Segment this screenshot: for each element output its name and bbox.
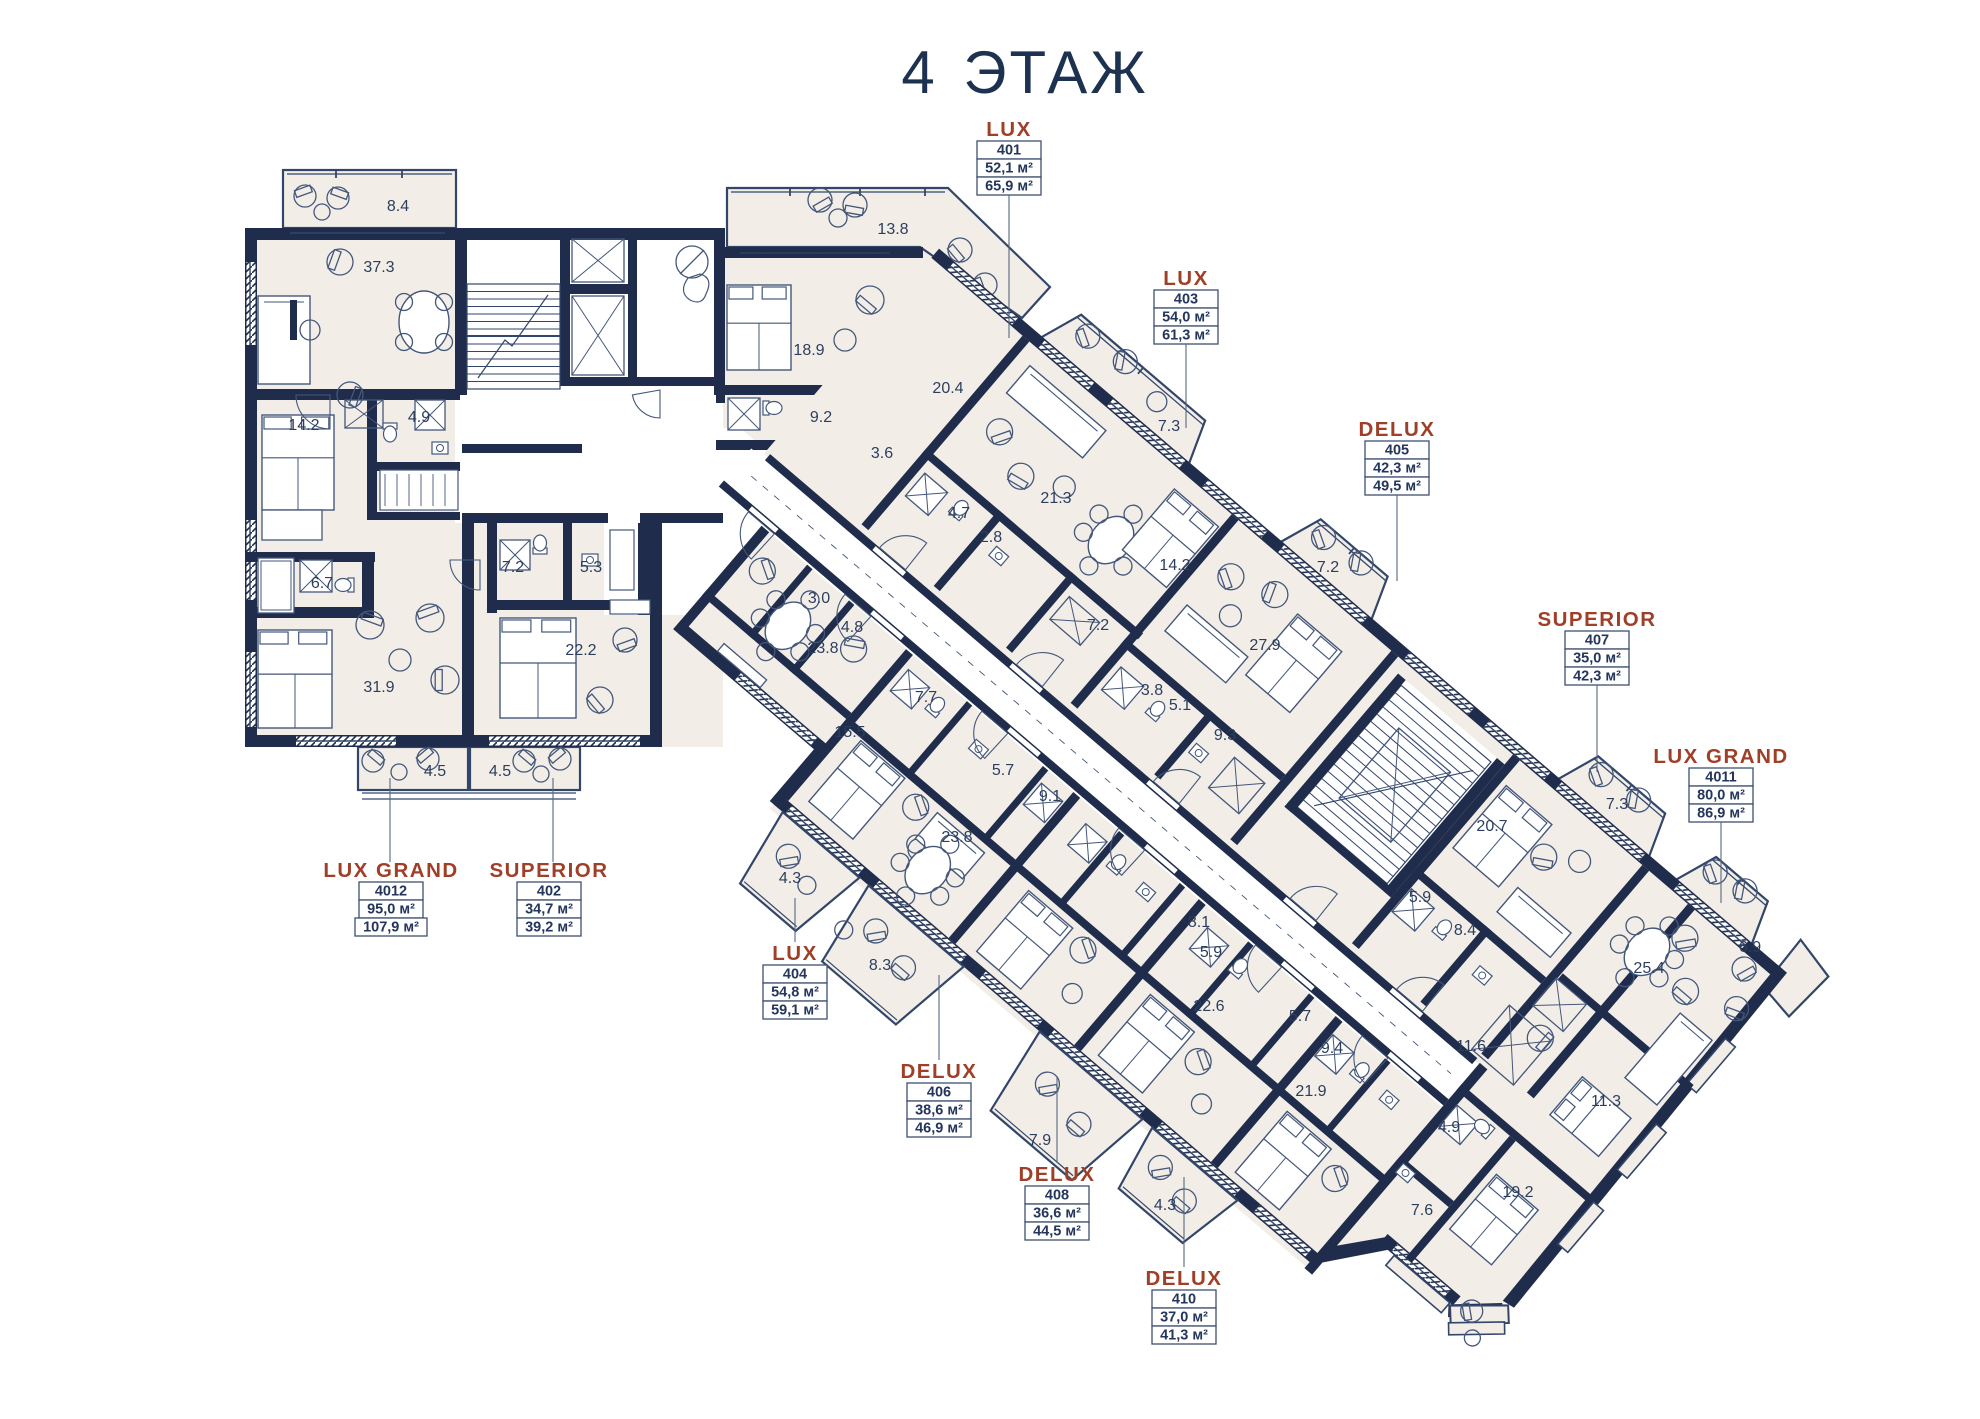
svg-text:402: 402 [537, 884, 561, 900]
svg-text:14.2: 14.2 [1159, 557, 1190, 574]
svg-text:4.5: 4.5 [489, 763, 511, 780]
svg-text:4.7: 4.7 [948, 505, 970, 522]
svg-text:27.9: 27.9 [1249, 637, 1280, 654]
svg-text:LUX: LUX [986, 118, 1032, 141]
svg-text:25.4: 25.4 [1633, 960, 1664, 977]
svg-text:15.5: 15.5 [834, 724, 865, 741]
svg-text:35,0 м²: 35,0 м² [1573, 651, 1621, 667]
svg-text:LUX GRAND: LUX GRAND [323, 859, 458, 882]
svg-text:39,2 м²: 39,2 м² [525, 920, 573, 936]
svg-text:6.7: 6.7 [311, 575, 333, 592]
svg-text:22.6: 22.6 [1193, 998, 1224, 1015]
svg-text:61,3 м²: 61,3 м² [1162, 328, 1210, 344]
svg-text:37.3: 37.3 [363, 259, 394, 276]
svg-text:49,5 м²: 49,5 м² [1373, 479, 1421, 495]
svg-text:20.4: 20.4 [932, 380, 963, 397]
svg-text:4.9: 4.9 [408, 409, 430, 426]
svg-text:7.3: 7.3 [1158, 418, 1180, 435]
svg-text:DELUX: DELUX [1359, 418, 1436, 441]
svg-text:7.2: 7.2 [502, 559, 524, 576]
svg-text:95,0 м²: 95,0 м² [367, 902, 415, 918]
svg-text:9.1: 9.1 [1039, 788, 1061, 805]
svg-text:86,9 м²: 86,9 м² [1697, 806, 1745, 822]
svg-text:5.3: 5.3 [580, 559, 602, 576]
svg-text:8.4: 8.4 [1454, 922, 1476, 939]
svg-text:37,0 м²: 37,0 м² [1160, 1310, 1208, 1326]
svg-text:8.1: 8.1 [1188, 914, 1210, 931]
svg-text:19.2: 19.2 [1502, 1184, 1533, 1201]
svg-text:9.3: 9.3 [1214, 727, 1236, 744]
svg-text:4.8: 4.8 [841, 619, 863, 636]
svg-text:23.8: 23.8 [941, 829, 972, 846]
svg-text:408: 408 [1045, 1188, 1069, 1204]
svg-text:4011: 4011 [1705, 770, 1736, 786]
svg-text:11.3: 11.3 [1591, 1093, 1621, 1110]
svg-text:7.2: 7.2 [1317, 559, 1339, 576]
svg-text:LUX: LUX [772, 942, 818, 965]
svg-text:36,6 м²: 36,6 м² [1033, 1206, 1081, 1222]
svg-text:4.9: 4.9 [1438, 1119, 1460, 1136]
svg-text:59,1 м²: 59,1 м² [771, 1003, 819, 1019]
svg-text:14.2: 14.2 [288, 417, 319, 434]
svg-text:3.0: 3.0 [808, 590, 830, 607]
svg-text:52,1 м²: 52,1 м² [985, 161, 1033, 177]
svg-text:23.8: 23.8 [807, 640, 838, 657]
svg-text:405: 405 [1385, 443, 1409, 459]
svg-text:5.7: 5.7 [1289, 1008, 1311, 1025]
svg-text:42,3 м²: 42,3 м² [1573, 669, 1621, 685]
svg-text:107,9 м²: 107,9 м² [363, 920, 419, 936]
svg-text:20.7: 20.7 [1476, 818, 1507, 835]
svg-text:21.9: 21.9 [1295, 1083, 1326, 1100]
svg-text:41,3 м²: 41,3 м² [1160, 1328, 1208, 1344]
svg-text:401: 401 [997, 143, 1021, 159]
svg-text:65,9 м²: 65,9 м² [985, 179, 1033, 195]
svg-text:407: 407 [1585, 633, 1609, 649]
svg-text:3.6: 3.6 [871, 445, 893, 462]
svg-text:SUPERIOR: SUPERIOR [489, 859, 608, 882]
svg-text:54,0 м²: 54,0 м² [1162, 310, 1210, 326]
svg-text:3.8: 3.8 [1141, 682, 1163, 699]
svg-text:8.3: 8.3 [869, 957, 891, 974]
svg-text:LUX: LUX [1163, 267, 1209, 290]
svg-text:7.2: 7.2 [1087, 617, 1109, 634]
svg-text:7.3: 7.3 [1606, 796, 1628, 813]
svg-text:5.1: 5.1 [1169, 697, 1191, 714]
svg-text:406: 406 [927, 1085, 951, 1101]
svg-text:31.9: 31.9 [363, 679, 394, 696]
svg-text:LUX GRAND: LUX GRAND [1653, 745, 1788, 768]
svg-text:403: 403 [1174, 292, 1198, 308]
svg-text:6.9: 6.9 [1739, 939, 1761, 956]
svg-text:7.9: 7.9 [1029, 1132, 1051, 1149]
svg-text:21.3: 21.3 [1040, 490, 1071, 507]
svg-text:13.8: 13.8 [877, 221, 908, 238]
svg-text:34,7 м²: 34,7 м² [525, 902, 573, 918]
svg-text:8.4: 8.4 [387, 198, 409, 215]
svg-text:2.8: 2.8 [980, 529, 1002, 546]
svg-text:80,0 м²: 80,0 м² [1697, 788, 1745, 804]
svg-text:46,9 м²: 46,9 м² [915, 1121, 963, 1137]
svg-text:5.7: 5.7 [992, 762, 1014, 779]
svg-text:11.6: 11.6 [1456, 1038, 1486, 1055]
svg-text:4 ЭТАЖ: 4 ЭТАЖ [901, 39, 1148, 106]
svg-text:9.4: 9.4 [1321, 1040, 1343, 1057]
svg-text:5.9: 5.9 [1409, 889, 1431, 906]
svg-text:SUPERIOR: SUPERIOR [1537, 608, 1656, 631]
svg-text:4012: 4012 [375, 884, 407, 900]
svg-text:38,6 м²: 38,6 м² [915, 1103, 963, 1119]
svg-text:42,3 м²: 42,3 м² [1373, 461, 1421, 477]
svg-text:4.3: 4.3 [779, 870, 801, 887]
svg-text:18.9: 18.9 [793, 342, 824, 359]
svg-text:DELUX: DELUX [901, 1060, 978, 1083]
svg-text:22.2: 22.2 [565, 642, 596, 659]
svg-text:DELUX: DELUX [1019, 1163, 1096, 1186]
svg-text:404: 404 [783, 967, 807, 983]
svg-text:410: 410 [1172, 1292, 1196, 1308]
svg-text:54,8 м²: 54,8 м² [771, 985, 819, 1001]
svg-text:4.3: 4.3 [1154, 1197, 1176, 1214]
svg-text:9.2: 9.2 [810, 409, 832, 426]
svg-text:DELUX: DELUX [1146, 1267, 1223, 1290]
svg-text:44,5 м²: 44,5 м² [1033, 1224, 1081, 1240]
svg-text:5.9: 5.9 [1200, 944, 1222, 961]
svg-text:4.5: 4.5 [424, 763, 446, 780]
svg-text:7.6: 7.6 [1411, 1202, 1433, 1219]
svg-text:7.7: 7.7 [915, 689, 937, 706]
